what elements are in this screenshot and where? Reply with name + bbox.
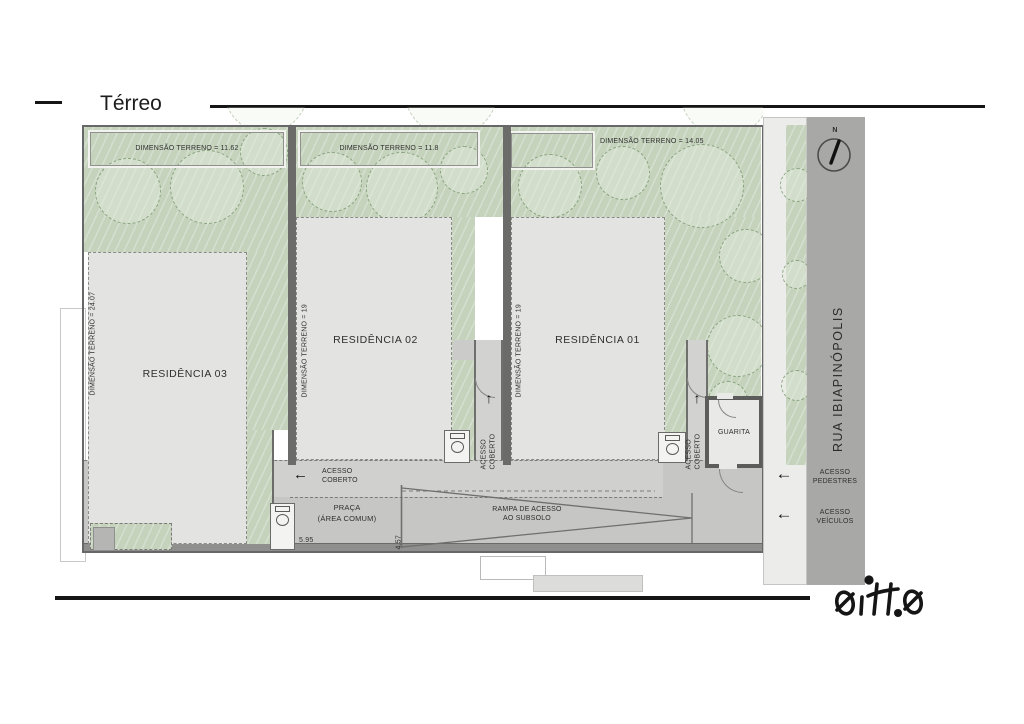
street-name: RUA IBIAPINÓPOLIS <box>831 306 845 452</box>
garden-lot3-side <box>247 252 288 430</box>
up-arrow-icon: ↑ <box>685 390 709 406</box>
dimension-box-lot2: DIMENSÃO TERRENO = 11.8 <box>300 132 478 166</box>
praca-line1: PRAÇA <box>297 503 397 514</box>
wc-fixture <box>658 432 686 463</box>
dimension-side-lot3: DIMENSÃO TERRENO = 24.07 <box>89 292 98 396</box>
toilet-icon <box>276 514 289 526</box>
title-tick <box>35 101 62 104</box>
pedestres-line2: PEDESTRES <box>806 477 864 486</box>
dimension-label-lot1: DIMENSÃO TERRENO = 14.05 <box>600 137 730 146</box>
ramp-line1: RAMPA DE ACESSO <box>462 505 592 514</box>
dimension-box-lot3: DIMENSÃO TERRENO = 11.62 <box>90 132 284 166</box>
lot-divider-wall <box>288 127 296 465</box>
dimension-595: 5.95 <box>299 536 329 545</box>
left-arrow-icon: ← <box>293 466 308 483</box>
north-label: N <box>828 126 842 135</box>
acesso-coberto-horizontal: ACESSO COBERTO <box>322 467 382 486</box>
toilet-icon <box>451 441 464 453</box>
tree-icon <box>95 158 161 224</box>
veiculos-line2: VEÍCULOS <box>806 517 864 526</box>
tree-icon <box>224 107 308 125</box>
pedestres-line1: ACESSO <box>806 468 864 477</box>
acesso-coberto-vertical: COBERTO <box>489 434 498 470</box>
oitto-logo <box>832 573 928 621</box>
acesso-line1: ACESSO <box>322 467 382 476</box>
ramp-line2: AO SUBSOLO <box>462 514 592 523</box>
neighbour-wall-left <box>60 308 86 562</box>
dimension-box-lot1 <box>511 133 593 168</box>
praca-label: PRAÇA (ÁREA COMUM) <box>297 503 397 524</box>
veiculos-line1: ACESSO <box>806 508 864 517</box>
toilet-icon <box>665 435 680 441</box>
lot-divider-wall <box>503 127 511 465</box>
garden-lot2-side <box>452 217 475 460</box>
building-residencia-03 <box>88 252 247 544</box>
garden-lot3-lower <box>247 430 272 544</box>
tree-icon <box>707 315 769 377</box>
left-arrow-icon: ← <box>766 504 802 524</box>
dimension-side-lot2: DIMENSÃO TERRENO = 19 <box>301 304 310 397</box>
residence-02-label: RESIDÊNCIA 02 <box>318 334 433 346</box>
wc-fixture <box>444 430 470 463</box>
wc-fixture <box>270 503 295 550</box>
ramp-label: RAMPA DE ACESSO AO SUBSOLO <box>462 505 592 524</box>
garden-structure <box>93 527 115 551</box>
residence-03-label: RESIDÊNCIA 03 <box>120 368 250 380</box>
dimension-label-lot2: DIMENSÃO TERRENO = 11.8 <box>339 144 438 153</box>
left-arrow-icon: ← <box>766 464 802 484</box>
door-opening <box>717 393 733 399</box>
footer-rule <box>55 596 810 600</box>
dimension-side-lot1: DIMENSÃO TERRENO = 19 <box>515 304 524 397</box>
tree-icon <box>596 146 650 200</box>
residence-01-label: RESIDÊNCIA 01 <box>540 334 655 346</box>
neighbour-structure <box>533 575 643 592</box>
vehicle-access-label: ACESSO VEÍCULOS <box>806 508 864 527</box>
toilet-icon <box>450 433 465 439</box>
acesso-coberto-vertical: COBERTO <box>694 434 703 470</box>
guarita-label: GUARITA <box>707 428 761 437</box>
canopy-overhang <box>84 107 763 125</box>
acesso-line2: COBERTO <box>322 476 382 485</box>
praca-line2: (ÁREA COMUM) <box>297 514 397 525</box>
toilet-icon <box>666 443 679 455</box>
pedestrian-access-label: ACESSO PEDESTRES <box>806 468 864 487</box>
up-arrow-icon: ↑ <box>477 390 501 406</box>
site-plan-page: { "title": "Térreo", "plan": { "lots": [… <box>0 0 1024 724</box>
tree-icon <box>680 107 763 125</box>
tree-icon <box>404 107 498 125</box>
tree-icon <box>660 144 744 228</box>
dimension-label-lot3: DIMENSÃO TERRENO = 11.62 <box>135 144 238 153</box>
toilet-icon <box>275 506 290 512</box>
dimension-457: 4.57 <box>395 535 404 549</box>
north-arrow-icon <box>812 133 856 177</box>
